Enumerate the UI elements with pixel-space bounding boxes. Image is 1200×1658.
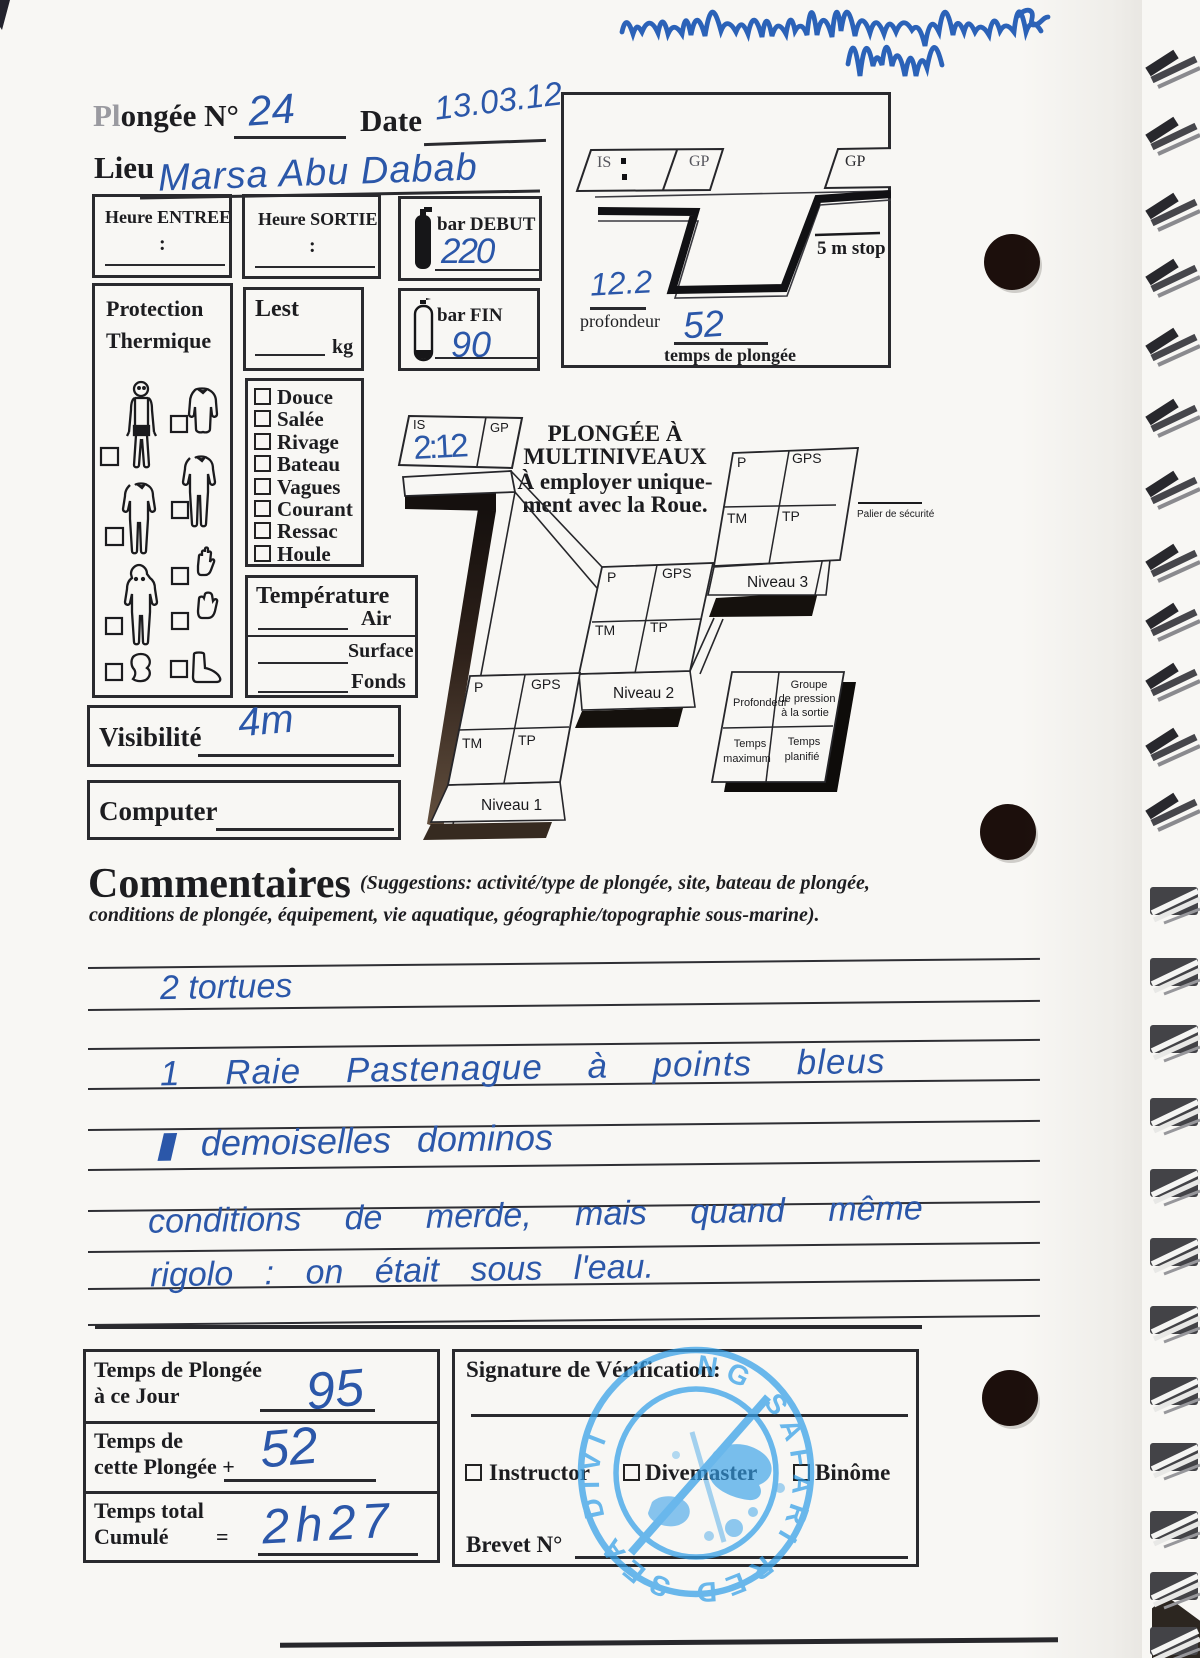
svg-text:TP: TP [650,619,668,635]
svg-text:Temps: Temps [788,736,821,748]
svg-text:GP: GP [490,420,509,435]
svg-text:P: P [474,679,483,695]
svg-text:GPS: GPS [531,676,561,692]
svg-text:de pression: de pression [779,693,836,705]
svg-text:2:12: 2:12 [412,426,468,466]
svg-text:Niveau 1: Niveau 1 [481,797,542,814]
svg-text:TP: TP [518,732,536,748]
svg-text:MULTINIVEAUX: MULTINIVEAUX [523,444,707,469]
svg-text:IS: IS [597,154,611,171]
svg-text:maximum: maximum [723,753,771,765]
svg-text:TM: TM [595,622,615,638]
svg-text:GPS: GPS [662,565,692,581]
svg-text:TP: TP [782,508,800,524]
svg-text:P: P [737,454,746,470]
svg-text:P: P [607,569,616,585]
svg-text:Niveau 3: Niveau 3 [747,574,808,591]
svg-text:GPS: GPS [792,450,822,466]
svg-text:Palier de sécurité: Palier de sécurité [857,509,935,520]
svg-text:GP: GP [689,153,710,170]
svg-text:Groupe: Groupe [791,679,828,691]
svg-text:TM: TM [462,735,482,751]
svg-text:À employer unique-: À employer unique- [517,469,712,494]
svg-text:PLONGÉE À: PLONGÉE À [548,421,683,446]
svg-text:Niveau 2: Niveau 2 [613,685,674,702]
svg-text:planifié: planifié [785,751,820,763]
svg-text:GP: GP [845,153,866,170]
svg-text:TM: TM [727,510,747,526]
svg-text:à la sortie: à la sortie [781,707,829,719]
svg-text:Temps: Temps [734,738,767,750]
svg-text:5 m stop: 5 m stop [817,238,886,259]
